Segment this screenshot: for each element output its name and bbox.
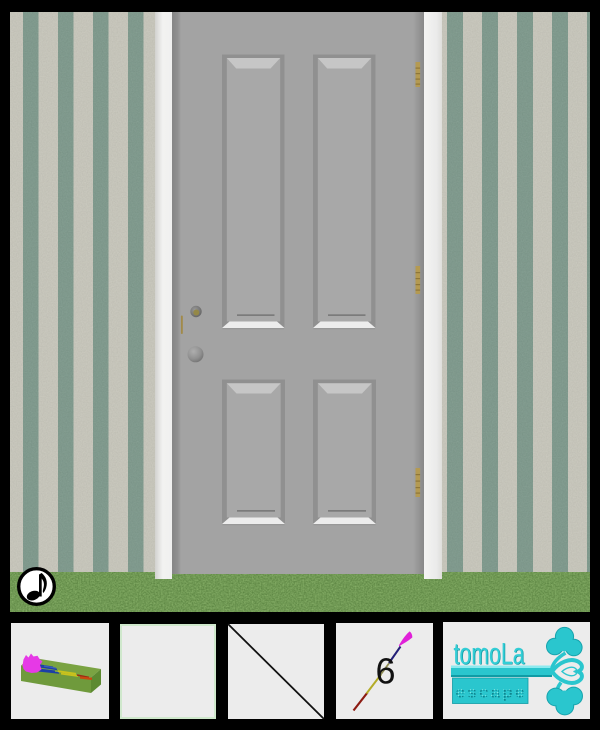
svg-text:6: 6 <box>376 651 396 692</box>
svg-text:escape: escape <box>456 685 527 702</box>
